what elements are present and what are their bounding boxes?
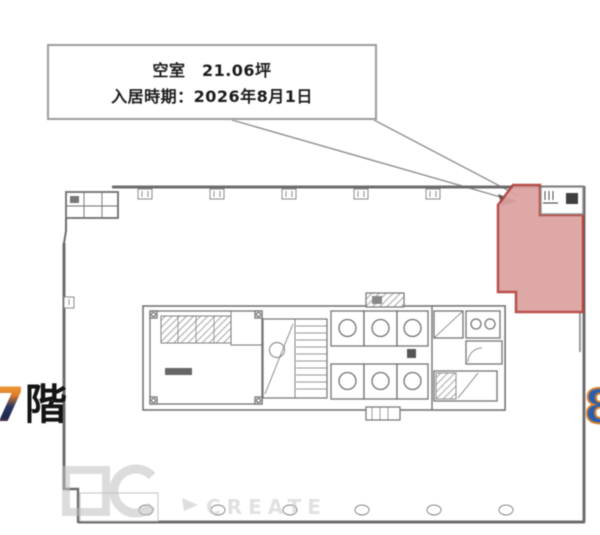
- highlight-corner-room: [541, 187, 583, 214]
- floor-label-right: 8: [584, 384, 600, 431]
- top-wall-columns: [138, 189, 440, 199]
- floor-label-left: 7階: [0, 382, 65, 429]
- core-right-block: [432, 306, 505, 410]
- floor-number-left: 7: [0, 382, 25, 429]
- floor-number-right: 8: [584, 380, 600, 435]
- highlighted-unit: [498, 185, 583, 312]
- leader-lines: [232, 120, 517, 206]
- core-facilities: [143, 293, 505, 420]
- left-wall-column: [64, 297, 74, 308]
- watermark-text: CREATE: [206, 495, 327, 519]
- move-in-date-text: 入居時期：2026年8月1日: [111, 83, 313, 107]
- core-stairwell: [263, 319, 327, 398]
- vacancy-callout-box: 空室 21.06坪 入居時期：2026年8月1日: [47, 44, 377, 120]
- floor-suffix-left: 階: [25, 382, 65, 428]
- watermark-logo: CREATE: [66, 469, 327, 519]
- vacancy-area-text: 空室 21.06坪: [152, 57, 271, 81]
- top-left-room: [66, 192, 118, 218]
- floorplan-page: 空室 21.06坪 入居時期：2026年8月1日: [0, 0, 600, 535]
- core-left-room: [150, 311, 262, 404]
